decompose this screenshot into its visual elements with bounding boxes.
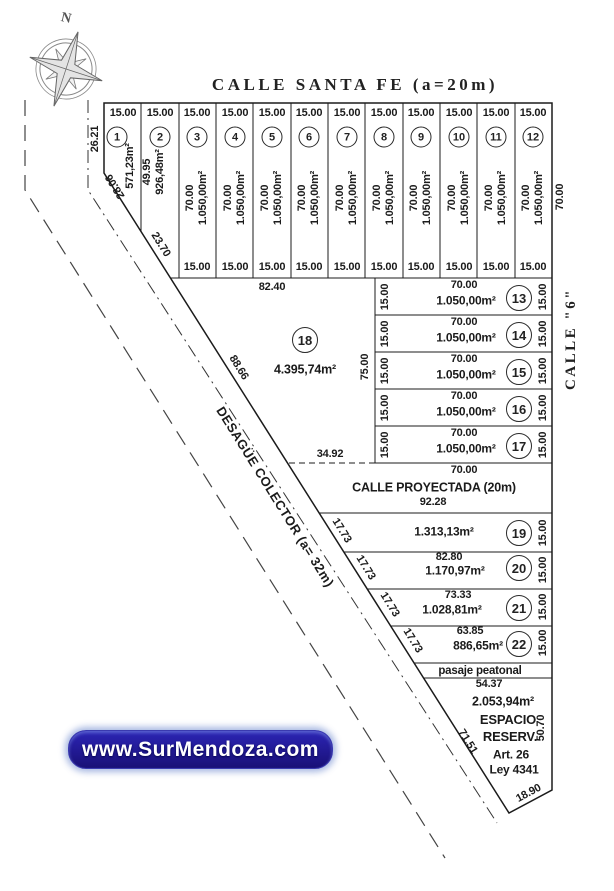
lot-front-dim: 15.00 <box>334 108 361 120</box>
lot-front-dim: 15.00 <box>446 108 473 120</box>
reserve-law-line1: Art. 26 <box>493 749 529 762</box>
lot-area: 1.050,00m² <box>273 171 285 225</box>
lot-number: 9 <box>411 127 432 148</box>
drain-dashdot-line <box>88 100 497 823</box>
lot-area: 926,48m² <box>155 149 167 195</box>
lot-side-dim: 26.21 <box>90 126 102 153</box>
lot-number: 6 <box>299 127 320 148</box>
lot-back-dim: 15.00 <box>184 262 211 274</box>
lot-depth-dim: 70.00 <box>372 185 384 212</box>
lot-front-dim: 82.80 <box>436 552 463 564</box>
lot-area: 1.170,97m² <box>425 565 484 578</box>
lot-front-dim: 15.00 <box>371 108 398 120</box>
lot-front-dim: 15.00 <box>408 108 435 120</box>
lot-depth-dim: 70.00 <box>451 428 478 440</box>
lot-back-dim: 15.00 <box>446 262 473 274</box>
lot-front-dim: 15.00 <box>259 108 286 120</box>
lot-depth-dim: 70.00 <box>335 185 347 212</box>
lot-front-dim: 15.00 <box>296 108 323 120</box>
lot-back-dim: 15.00 <box>334 262 361 274</box>
lot-number: 7 <box>337 127 358 148</box>
lot-depth-dim: 70.00 <box>223 185 235 212</box>
lot-number: 17 <box>506 433 532 459</box>
lot-front-dim: 63.85 <box>457 626 484 638</box>
lot-number: 12 <box>523 127 544 148</box>
lot-depth-dim: 70.00 <box>451 391 478 403</box>
lot-number: 11 <box>486 127 507 148</box>
lot-right-dim: 15.00 <box>538 630 550 657</box>
lot-area: 1.050,00m² <box>436 332 495 345</box>
lot-number: 18 <box>292 327 318 353</box>
mid-width-dim: 34.92 <box>317 449 344 461</box>
block-right-depth-dim: 70.00 <box>555 184 567 211</box>
street-calle-santa-fe: CALLE SANTA FE (a=20m) <box>212 76 498 94</box>
reserve-name-line2: RESERV. <box>483 730 537 744</box>
lot-left-dim: 15.00 <box>380 284 392 311</box>
lot-right-dim: 15.00 <box>538 557 550 584</box>
passage-width-dim: 54.37 <box>476 679 503 691</box>
lot-area: 886,65m² <box>453 640 503 653</box>
lot-number: 5 <box>262 127 283 148</box>
lot-depth-dim: 70.00 <box>409 185 421 212</box>
lot-back-dim: 15.00 <box>222 262 249 274</box>
lot-area: 1.028,81m² <box>422 604 481 617</box>
lot-right-dim: 15.00 <box>538 358 550 385</box>
street-calle-6: CALLE "6" <box>564 288 580 390</box>
lot-number: 20 <box>506 555 532 581</box>
lot-number: 14 <box>506 322 532 348</box>
lot-back-dim: 15.00 <box>371 262 398 274</box>
lot-number: 10 <box>449 127 470 148</box>
lot-area: 1.050,00m² <box>348 171 360 225</box>
east-block-height-dim: 75.00 <box>360 354 372 381</box>
lot-area: 1.050,00m² <box>460 171 472 225</box>
lot-depth-dim: 70.00 <box>451 280 478 292</box>
lot-right-dim: 15.00 <box>538 520 550 547</box>
lot-number: 19 <box>506 520 532 546</box>
lot-right-dim: 15.00 <box>538 321 550 348</box>
lot-number: 2 <box>150 127 171 148</box>
block-top-width-dim: 82.40 <box>259 282 286 294</box>
lot-area: 1.313,13m² <box>414 526 473 539</box>
reserve-law-line2: Ley 4341 <box>489 764 538 777</box>
lot-depth-dim: 70.00 <box>260 185 272 212</box>
lot-area: 1.050,00m² <box>422 171 434 225</box>
reserve-right-dim: 50.70 <box>536 715 548 742</box>
lot-back-dim: 15.00 <box>483 262 510 274</box>
lot-front-dim: 73.33 <box>445 590 472 602</box>
lot-area: 1.050,00m² <box>198 171 210 225</box>
lot-depth-dim: 70.00 <box>297 185 309 212</box>
lot-back-dim: 15.00 <box>408 262 435 274</box>
subdivision-plan: CALLE SANTA FE (a=20m) CALLE "6" CALLE P… <box>0 0 614 891</box>
lot-area: 4.395,74m² <box>274 363 336 376</box>
lot-right-dim: 15.00 <box>538 395 550 422</box>
projected-bottom-dim: 92.28 <box>420 497 447 509</box>
lot-area: 1.050,00m² <box>534 171 546 225</box>
lot-area: 1.050,00m² <box>236 171 248 225</box>
projected-top-dim: 70.00 <box>451 465 478 477</box>
lot-number: 16 <box>506 396 532 422</box>
lot-number: 4 <box>225 127 246 148</box>
lot-front-dim: 15.00 <box>184 108 211 120</box>
lot-front-dim: 15.00 <box>520 108 547 120</box>
lot-area: 571,23m² <box>125 143 137 189</box>
lot-area: 1.050,00m² <box>497 171 509 225</box>
lot-front-dim: 15.00 <box>110 108 137 120</box>
compass-rose <box>18 20 114 118</box>
lot-back-dim: 15.00 <box>520 262 547 274</box>
lot-area: 1.050,00m² <box>436 295 495 308</box>
lot-number: 8 <box>374 127 395 148</box>
lot-left-dim: 15.00 <box>380 321 392 348</box>
lot-number: 21 <box>506 595 532 621</box>
lot-right-dim: 15.00 <box>538 432 550 459</box>
lot-depth-dim: 70.00 <box>521 185 533 212</box>
lot-depth-dim: 70.00 <box>451 354 478 366</box>
lot-side-dim: 49.95 <box>142 159 154 186</box>
lot-area: 1.050,00m² <box>436 406 495 419</box>
passage-label: pasaje peatonal <box>438 665 521 677</box>
lot-number: 15 <box>506 359 532 385</box>
lot-depth-dim: 70.00 <box>484 185 496 212</box>
lot-depth-dim: 70.00 <box>185 185 197 212</box>
lot-back-dim: 15.00 <box>296 262 323 274</box>
lot-right-dim: 15.00 <box>538 284 550 311</box>
lot-front-dim: 15.00 <box>147 108 174 120</box>
lot-number: 13 <box>506 285 532 311</box>
lot-area: 1.050,00m² <box>436 369 495 382</box>
reserve-name-line1: ESPACIO <box>480 713 536 727</box>
lot-number: 3 <box>187 127 208 148</box>
lot-area: 1.050,00m² <box>436 443 495 456</box>
watermark-surmendoza: www.SurMendoza.com <box>68 730 333 769</box>
street-calle-proyectada: CALLE PROYECTADA (20m) <box>352 481 516 494</box>
reserve-area: 2.053,94m² <box>472 695 534 708</box>
lot-area: 1.050,00m² <box>310 171 322 225</box>
lot-number: 22 <box>506 631 532 657</box>
lot-area: 1.050,00m² <box>385 171 397 225</box>
lot-left-dim: 15.00 <box>380 358 392 385</box>
lot-left-dim: 15.00 <box>380 395 392 422</box>
lot-back-dim: 15.00 <box>259 262 286 274</box>
lot-front-dim: 15.00 <box>483 108 510 120</box>
lot-front-dim: 15.00 <box>222 108 249 120</box>
lot-left-dim: 15.00 <box>380 432 392 459</box>
lot-depth-dim: 70.00 <box>447 185 459 212</box>
lot-right-dim: 15.00 <box>538 594 550 621</box>
lot-depth-dim: 70.00 <box>451 317 478 329</box>
